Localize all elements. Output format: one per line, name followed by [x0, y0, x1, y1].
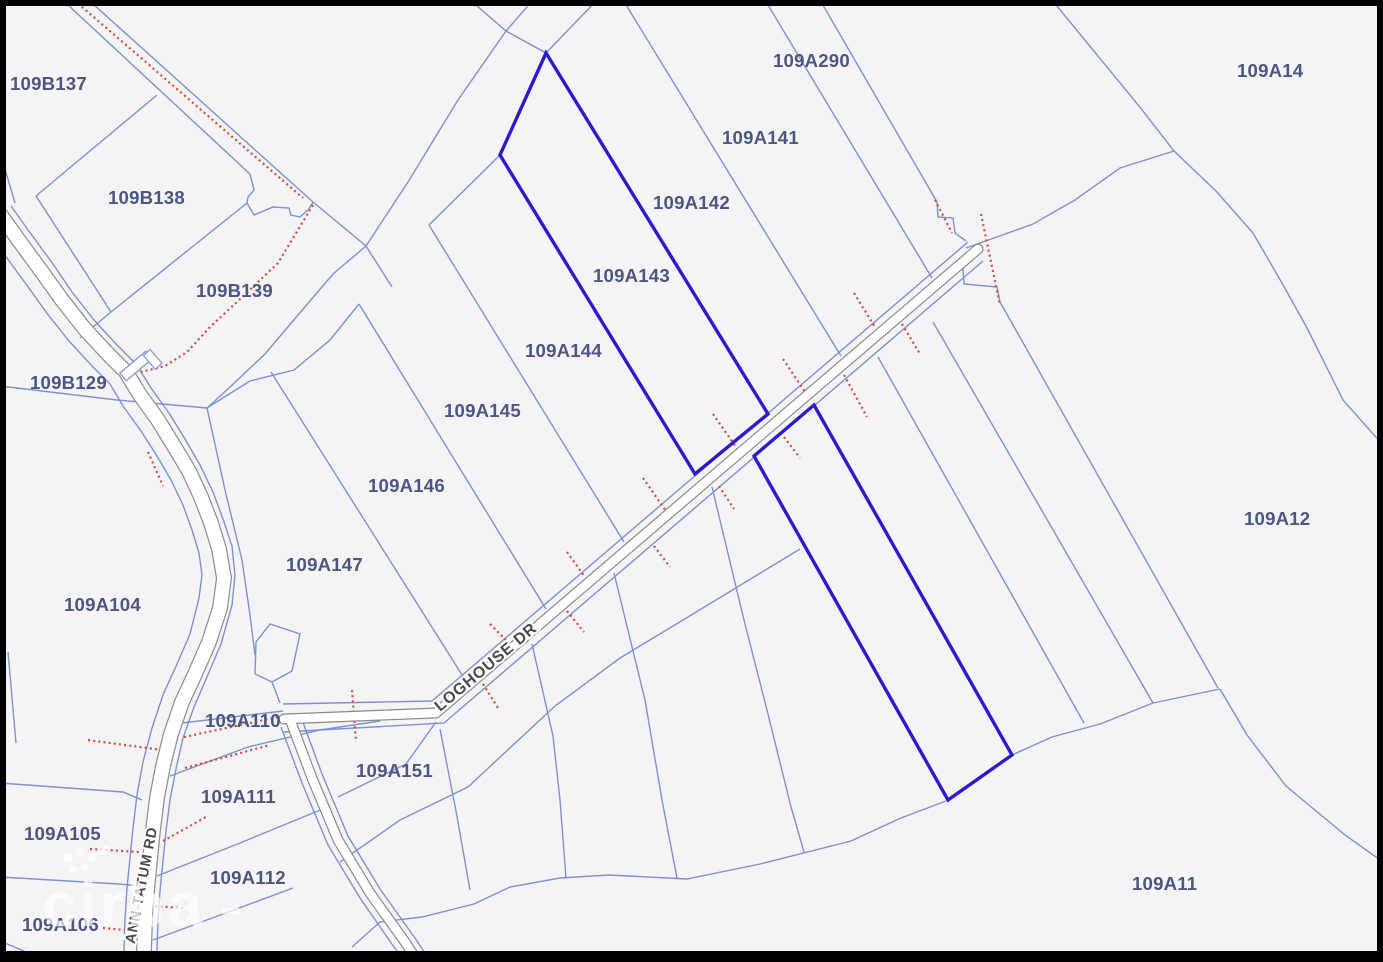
svg-text:109A141: 109A141	[722, 127, 799, 148]
svg-text:cirba: cirba	[42, 871, 205, 940]
svg-text:109B129: 109B129	[30, 372, 107, 393]
svg-text:109A110: 109A110	[205, 710, 281, 731]
svg-text:109B138: 109B138	[108, 187, 185, 208]
svg-text:109A105: 109A105	[24, 823, 101, 844]
svg-text:109B139: 109B139	[196, 280, 273, 301]
svg-text:109A112: 109A112	[210, 867, 286, 888]
svg-text:109A11: 109A11	[1132, 873, 1197, 894]
svg-text:109A147: 109A147	[286, 554, 363, 575]
svg-text:109A145: 109A145	[444, 400, 521, 421]
svg-text:109A144: 109A144	[525, 340, 602, 361]
svg-text:109A104: 109A104	[64, 594, 141, 615]
svg-text:109A12: 109A12	[1244, 508, 1310, 529]
svg-text:109A146: 109A146	[368, 475, 445, 496]
svg-text:109A143: 109A143	[593, 265, 670, 286]
svg-text:109A151: 109A151	[356, 760, 433, 781]
svg-text:109A14: 109A14	[1237, 60, 1304, 81]
svg-text:109B137: 109B137	[10, 73, 87, 94]
svg-text:109A142: 109A142	[653, 192, 730, 213]
svg-text:109A111: 109A111	[201, 786, 276, 807]
svg-text:109A290: 109A290	[773, 50, 850, 71]
